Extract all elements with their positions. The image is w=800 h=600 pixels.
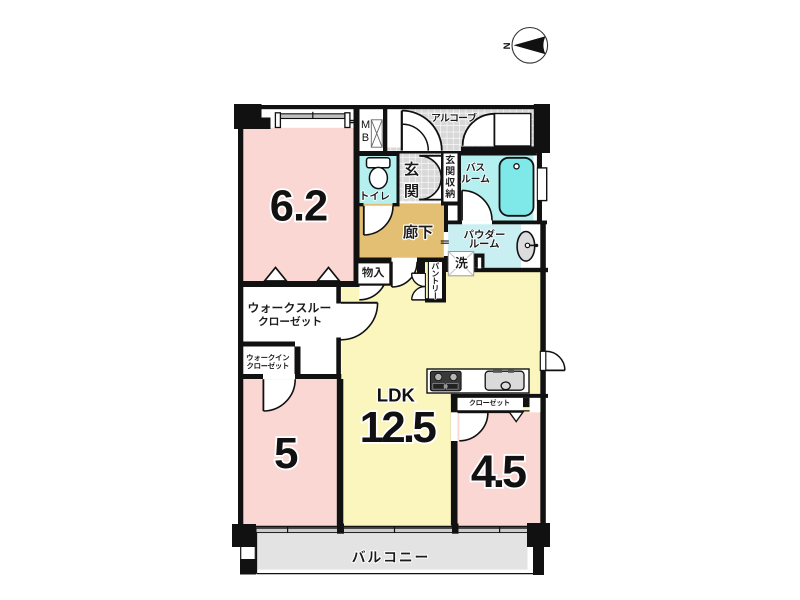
svg-text:6.2: 6.2 <box>270 183 327 231</box>
svg-text:12.5: 12.5 <box>360 403 437 452</box>
svg-text:5: 5 <box>274 429 298 478</box>
svg-text:M: M <box>361 119 370 131</box>
svg-text:B: B <box>362 132 369 144</box>
svg-text:N: N <box>500 43 511 50</box>
svg-text:4.5: 4.5 <box>471 446 526 497</box>
